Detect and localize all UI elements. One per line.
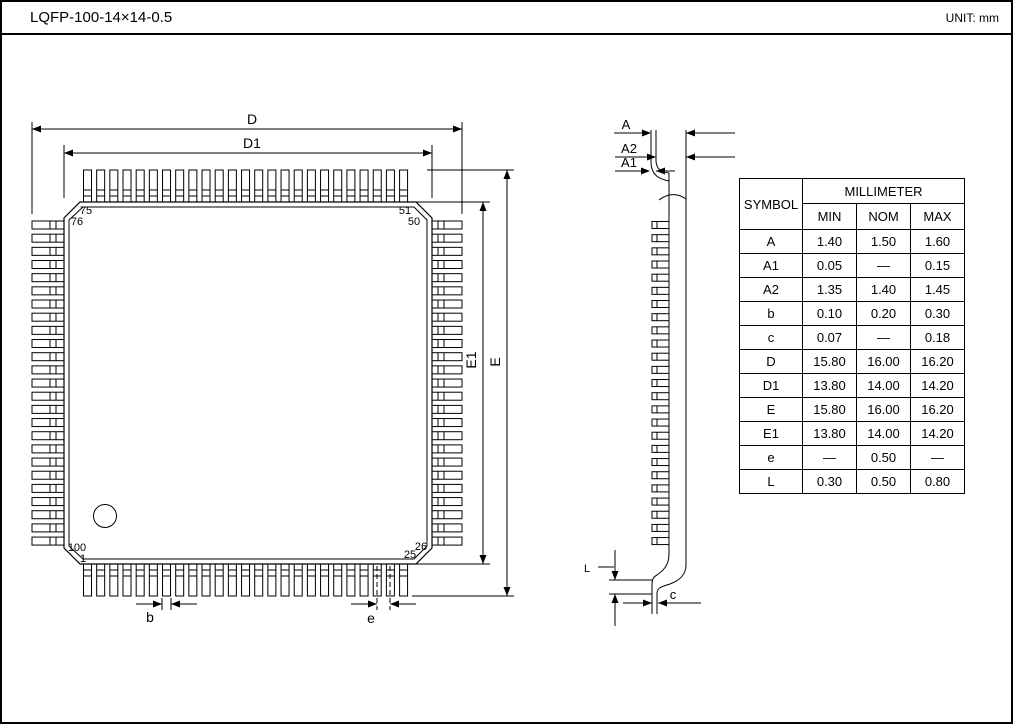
side-pin-stubs	[652, 222, 669, 545]
table-row: e—0.50—	[740, 446, 965, 470]
dim-label-D1: D1	[243, 135, 261, 151]
cell-min: 0.07	[803, 326, 857, 350]
header-min: MIN	[803, 204, 857, 230]
cell-symbol: A1	[740, 254, 803, 278]
labels: D D1 E1 E b e A A2 A1 L c 75 76 51 50 10…	[68, 111, 677, 626]
dim-label-A: A	[622, 117, 631, 132]
side-view	[598, 130, 735, 626]
cell-max: 16.20	[911, 398, 965, 422]
table-row: E15.8016.0016.20	[740, 398, 965, 422]
cell-symbol: c	[740, 326, 803, 350]
table-row: E113.8014.0014.20	[740, 422, 965, 446]
cell-nom: 16.00	[857, 398, 911, 422]
cell-nom: —	[857, 326, 911, 350]
cell-nom: 1.40	[857, 278, 911, 302]
cell-symbol: e	[740, 446, 803, 470]
cell-max: 0.30	[911, 302, 965, 326]
cell-min: —	[803, 446, 857, 470]
cell-max: 1.45	[911, 278, 965, 302]
header-max: MAX	[911, 204, 965, 230]
cell-min: 1.40	[803, 230, 857, 254]
page: LQFP-100-14×14-0.5 UNIT: mm	[0, 0, 1013, 724]
dim-label-c: c	[670, 587, 677, 602]
cell-max: 14.20	[911, 422, 965, 446]
table-row: L0.300.500.80	[740, 470, 965, 494]
cell-nom: 0.50	[857, 446, 911, 470]
pin-array	[32, 170, 462, 596]
pin-number-76: 76	[71, 216, 83, 228]
cell-nom: 0.20	[857, 302, 911, 326]
table-row: b0.100.200.30	[740, 302, 965, 326]
cell-min: 1.35	[803, 278, 857, 302]
cell-symbol: E	[740, 398, 803, 422]
pin1-indicator	[94, 505, 117, 528]
pin-number-25: 25	[404, 549, 416, 561]
dim-line-L	[598, 550, 615, 626]
top-view	[32, 122, 514, 610]
dim-label-e: e	[367, 610, 375, 626]
pitch-centerlines	[377, 566, 390, 610]
table-row: A1.401.501.60	[740, 230, 965, 254]
cell-min: 0.10	[803, 302, 857, 326]
dim-label-A1: A1	[621, 155, 637, 170]
cell-min: 15.80	[803, 398, 857, 422]
cell-min: 0.30	[803, 470, 857, 494]
dim-label-L: L	[584, 563, 590, 575]
cell-symbol: A2	[740, 278, 803, 302]
cell-nom: 14.00	[857, 422, 911, 446]
dim-label-E1: E1	[463, 351, 479, 368]
dim-label-E: E	[487, 357, 503, 366]
pin-number-1: 1	[80, 553, 86, 565]
side-bottom-lead	[652, 554, 686, 614]
table-row: D113.8014.0014.20	[740, 374, 965, 398]
cell-max: 16.20	[911, 350, 965, 374]
cell-symbol: L	[740, 470, 803, 494]
cell-symbol: b	[740, 302, 803, 326]
cell-max: —	[911, 446, 965, 470]
cell-nom: 14.00	[857, 374, 911, 398]
cell-min: 13.80	[803, 422, 857, 446]
package-body-outline	[64, 202, 432, 564]
header-nom: NOM	[857, 204, 911, 230]
cell-nom: —	[857, 254, 911, 278]
dim-label-A2: A2	[621, 141, 637, 156]
cell-max: 0.18	[911, 326, 965, 350]
dim-label-b: b	[146, 609, 154, 625]
cell-symbol: D	[740, 350, 803, 374]
cell-symbol: D1	[740, 374, 803, 398]
cell-max: 1.60	[911, 230, 965, 254]
pin-number-50: 50	[408, 216, 420, 228]
package-body-inner-outline	[69, 207, 427, 559]
cell-max: 14.20	[911, 374, 965, 398]
cell-min: 0.05	[803, 254, 857, 278]
dimension-table: SYMBOL MILLIMETER MIN NOM MAX A1.401.501…	[739, 178, 965, 494]
table-header-row-1: SYMBOL MILLIMETER	[740, 179, 965, 204]
cell-min: 15.80	[803, 350, 857, 374]
cell-max: 0.80	[911, 470, 965, 494]
dim-label-D: D	[247, 111, 257, 127]
cell-min: 13.80	[803, 374, 857, 398]
cell-nom: 0.50	[857, 470, 911, 494]
table-row: A21.351.401.45	[740, 278, 965, 302]
cell-nom: 16.00	[857, 350, 911, 374]
cell-symbol: A	[740, 230, 803, 254]
table-row: D15.8016.0016.20	[740, 350, 965, 374]
header-millimeter: MILLIMETER	[803, 179, 965, 204]
cell-max: 0.15	[911, 254, 965, 278]
cell-symbol: E1	[740, 422, 803, 446]
table-row: c0.07—0.18	[740, 326, 965, 350]
cell-nom: 1.50	[857, 230, 911, 254]
seating-plane-lines	[609, 580, 652, 594]
header-symbol: SYMBOL	[740, 179, 803, 230]
table-row: A10.05—0.15	[740, 254, 965, 278]
pin-number-26: 26	[415, 541, 427, 553]
